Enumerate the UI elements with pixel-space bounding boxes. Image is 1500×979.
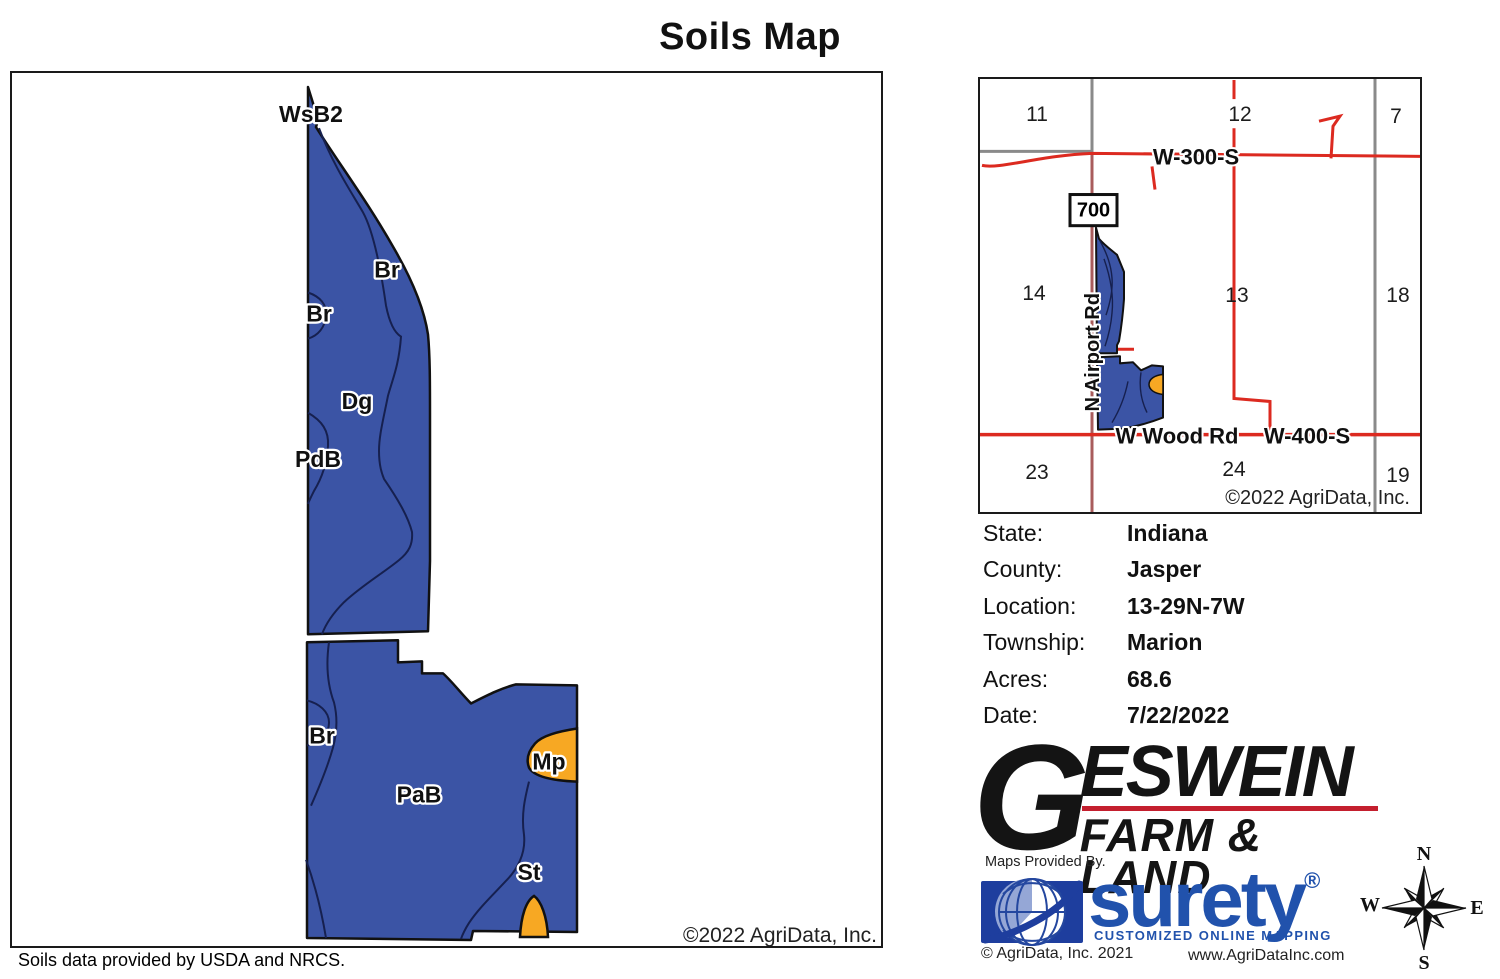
section-13: 13 bbox=[1225, 284, 1248, 307]
info-row-county: County: Jasper bbox=[983, 551, 1383, 587]
soil-label-dg: Dg bbox=[342, 388, 373, 414]
soil-label-mp: Mp bbox=[532, 749, 565, 775]
soil-label-st: St bbox=[518, 859, 541, 885]
soil-label-wsb2: WsB2 bbox=[279, 101, 343, 127]
info-label: Acres: bbox=[983, 661, 1127, 697]
parcel-info-panel: State: Indiana County: Jasper Location: … bbox=[983, 515, 1383, 733]
section-7: 7 bbox=[1390, 105, 1402, 128]
compass-e-label: E bbox=[1470, 897, 1483, 919]
info-value: 13-29N-7W bbox=[1127, 588, 1245, 624]
location-map-panel: 700 11 12 7 14 13 18 23 24 19 W-300-S W … bbox=[978, 77, 1422, 514]
road-label-w300s: W-300-S bbox=[1153, 144, 1239, 169]
road-label-wwood: W Wood Rd bbox=[1116, 424, 1239, 449]
compass-n-label: N bbox=[1417, 843, 1432, 865]
soil-polygon-south bbox=[307, 640, 577, 940]
compass-cardinal-points bbox=[1382, 866, 1466, 950]
compass-rose-icon: N E S W bbox=[1358, 832, 1493, 979]
section-11: 11 bbox=[1026, 103, 1048, 126]
info-label: Township: bbox=[983, 624, 1127, 660]
soils-map-svg: WsB2 Br Br Dg PdB Br PaB Mp St ©2022 Agr… bbox=[12, 73, 881, 946]
info-value: Jasper bbox=[1127, 551, 1201, 587]
info-value: Indiana bbox=[1127, 515, 1208, 551]
soils-map-panel: WsB2 Br Br Dg PdB Br PaB Mp St ©2022 Agr… bbox=[10, 71, 883, 948]
compass-s-label: S bbox=[1418, 952, 1429, 974]
info-row-location: Location: 13-29N-7W bbox=[983, 588, 1383, 624]
info-value: 68.6 bbox=[1127, 661, 1172, 697]
soils-map-report: Soils Map WsB2 Br Br Dg PdB bbox=[0, 0, 1500, 979]
info-value: Marion bbox=[1127, 624, 1202, 660]
soils-map-copyright: ©2022 AgriData, Inc. bbox=[683, 924, 877, 946]
info-label: County: bbox=[983, 551, 1127, 587]
property-outline-south bbox=[1097, 356, 1163, 429]
soil-polygon-north bbox=[308, 87, 430, 634]
surety-globe-icon bbox=[979, 872, 1093, 952]
soil-label-pdb: PdB bbox=[295, 446, 341, 472]
soil-label-br: Br bbox=[306, 301, 332, 327]
section-19: 19 bbox=[1386, 464, 1409, 487]
info-value: 7/22/2022 bbox=[1127, 697, 1229, 733]
road-label-w400s: W-400-S bbox=[1264, 424, 1350, 449]
section-18: 18 bbox=[1386, 284, 1409, 307]
soil-label-br: Br bbox=[309, 723, 335, 749]
compass-w-label: W bbox=[1360, 894, 1380, 916]
info-label: Location: bbox=[983, 588, 1127, 624]
registered-mark: ® bbox=[1304, 868, 1320, 893]
info-label: State: bbox=[983, 515, 1127, 551]
surety-tagline: CUSTOMIZED ONLINE MAPPING bbox=[1094, 928, 1332, 943]
soils-data-footnote: Soils data provided by USDA and NRCS. bbox=[18, 950, 345, 971]
soil-label-pab: PaB bbox=[397, 782, 442, 808]
geswein-logo-g: G bbox=[973, 740, 1086, 854]
surety-logo: surety® bbox=[1088, 860, 1320, 938]
location-map-copyright: ©2022 AgriData, Inc. bbox=[1225, 487, 1410, 509]
section-14: 14 bbox=[1022, 282, 1046, 305]
info-row-township: Township: Marion bbox=[983, 624, 1383, 660]
agridata-website: www.AgriDataInc.com bbox=[1188, 947, 1345, 965]
info-row-acres: Acres: 68.6 bbox=[983, 661, 1383, 697]
geswein-logo-name: ESWEIN bbox=[1080, 744, 1378, 800]
agridata-2021-copyright: © AgriData, Inc. 2021 bbox=[981, 945, 1133, 963]
road-label-airport: N Airport Rd bbox=[1082, 293, 1104, 412]
info-row-state: State: Indiana bbox=[983, 515, 1383, 551]
section-12: 12 bbox=[1228, 103, 1251, 126]
section-23: 23 bbox=[1025, 461, 1048, 484]
location-map-svg: 700 11 12 7 14 13 18 23 24 19 W-300-S W … bbox=[980, 79, 1420, 512]
highway-badge-label: 700 bbox=[1077, 200, 1110, 222]
section-24: 24 bbox=[1222, 458, 1246, 481]
page-title: Soils Map bbox=[0, 16, 1500, 59]
soil-label-br: Br bbox=[374, 256, 400, 282]
